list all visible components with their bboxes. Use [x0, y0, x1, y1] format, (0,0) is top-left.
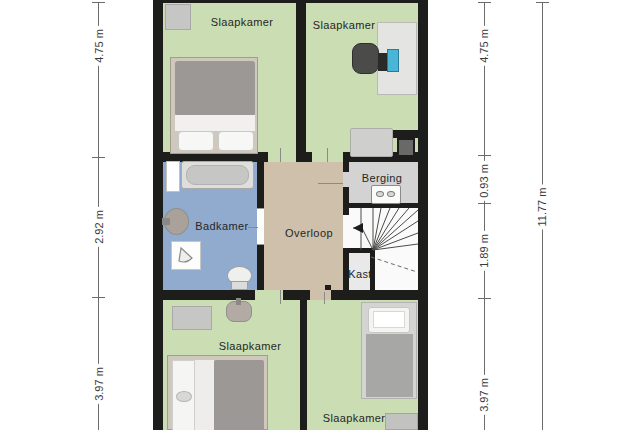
dimension-tick [92, 2, 105, 3]
door-opening [268, 152, 296, 162]
bathroom-door [257, 208, 264, 245]
room-label-bedroom-top-left: Slaapkamer [211, 16, 274, 28]
bed-pillow [218, 131, 254, 151]
floorplan-canvas: 4.75 m 2.92 m 3.97 m 4.75 m 0.93 m 1.89 … [0, 0, 640, 430]
bed-pillow-inner [373, 311, 405, 328]
wall-between-top-bedrooms [296, 3, 306, 152]
bed-duvet [214, 360, 264, 430]
room-label-closet: Kast [348, 268, 372, 280]
dimension-label: 11.77 m [536, 185, 548, 230]
door-frame-tick [327, 148, 328, 162]
washing-machine-knob [376, 191, 384, 197]
office-chair-icon [352, 43, 379, 74]
door-opening [255, 290, 283, 300]
dimension-tick [478, 203, 491, 204]
dimension-tick [478, 155, 491, 156]
bed-sheet [175, 115, 255, 131]
bathtub-icon [181, 161, 254, 189]
wall-bathroom-landing [257, 162, 264, 208]
washing-machine-icon [371, 185, 401, 204]
floor-landing [264, 162, 343, 290]
dimension-label: 3.97 m [478, 375, 490, 415]
room-label-bedroom-bottom-left: Slaapkamer [219, 340, 282, 352]
room-label-bedroom-top-right: Slaapkamer [313, 19, 376, 31]
door-opening [343, 172, 349, 187]
dimension-label: 2.92 m [93, 207, 105, 247]
dimension-tick [92, 297, 105, 298]
door-frame-tick [280, 148, 281, 162]
dresser-icon [350, 128, 393, 157]
wall-jog [393, 130, 428, 138]
dimension-label: 1.89 m [478, 231, 490, 271]
dimension-label: 4.75 m [478, 26, 490, 66]
stairs-direction-arrow [353, 223, 363, 233]
dimension-label: 4.75 m [93, 26, 105, 66]
wall-exterior-left [153, 0, 163, 430]
wall-exterior-right [418, 0, 428, 430]
room-label-bathroom: Badkamer [195, 220, 248, 232]
wall-bathroom-landing [257, 245, 264, 290]
dimension-line-right-inner [484, 2, 485, 430]
shower-spray-glyph [172, 242, 200, 269]
faucet-icon [236, 298, 241, 305]
shower-tray-icon [166, 161, 180, 192]
toilet-tank [231, 281, 248, 290]
monitor-icon [378, 53, 387, 71]
wall-exterior-top [153, 0, 428, 3]
wall-stub [325, 285, 331, 290]
faucet-icon [162, 218, 170, 225]
double-bed-icon [170, 57, 258, 154]
washing-machine-knob [387, 191, 395, 197]
dimension-label: 3.97 m [93, 364, 105, 404]
monitor-screen [387, 49, 399, 72]
bed-pillow [178, 131, 214, 151]
dimension-tick [478, 298, 491, 299]
wall-between-bottom-bedrooms [300, 300, 307, 430]
door-leaf-line [248, 227, 258, 228]
door-frame-tick [280, 290, 281, 304]
dresser-icon [385, 413, 418, 430]
single-bed-icon [361, 302, 417, 399]
bed-cushion [176, 391, 192, 402]
bed-duvet [366, 334, 413, 397]
room-label-storage: Berging [362, 172, 403, 184]
wall-lower-band [283, 290, 310, 300]
dimension-tick [536, 2, 549, 3]
stairs-icon [349, 208, 418, 295]
room-label-bedroom-bottom-right: Slaapkamer [323, 412, 386, 424]
wall-lower-band [163, 290, 255, 300]
duct-icon [397, 138, 415, 157]
wall-landing-storage [343, 162, 349, 172]
bed-duvet [175, 61, 255, 116]
wardrobe-icon [172, 306, 212, 330]
dimension-tick [478, 2, 491, 3]
door-leaf-line [318, 183, 343, 184]
bathtub-basin [186, 165, 249, 185]
wall-middle-band [296, 152, 312, 162]
dimension-label: 0.93 m [478, 161, 490, 201]
door-frame-tick [324, 292, 325, 304]
room-label-landing: Overloop [285, 227, 333, 239]
dimension-tick [92, 157, 105, 158]
double-bed-icon [167, 355, 268, 430]
bed-sheet [195, 360, 214, 430]
wardrobe-icon [165, 4, 191, 30]
shower-icon [171, 241, 201, 270]
door-opening [310, 290, 331, 300]
